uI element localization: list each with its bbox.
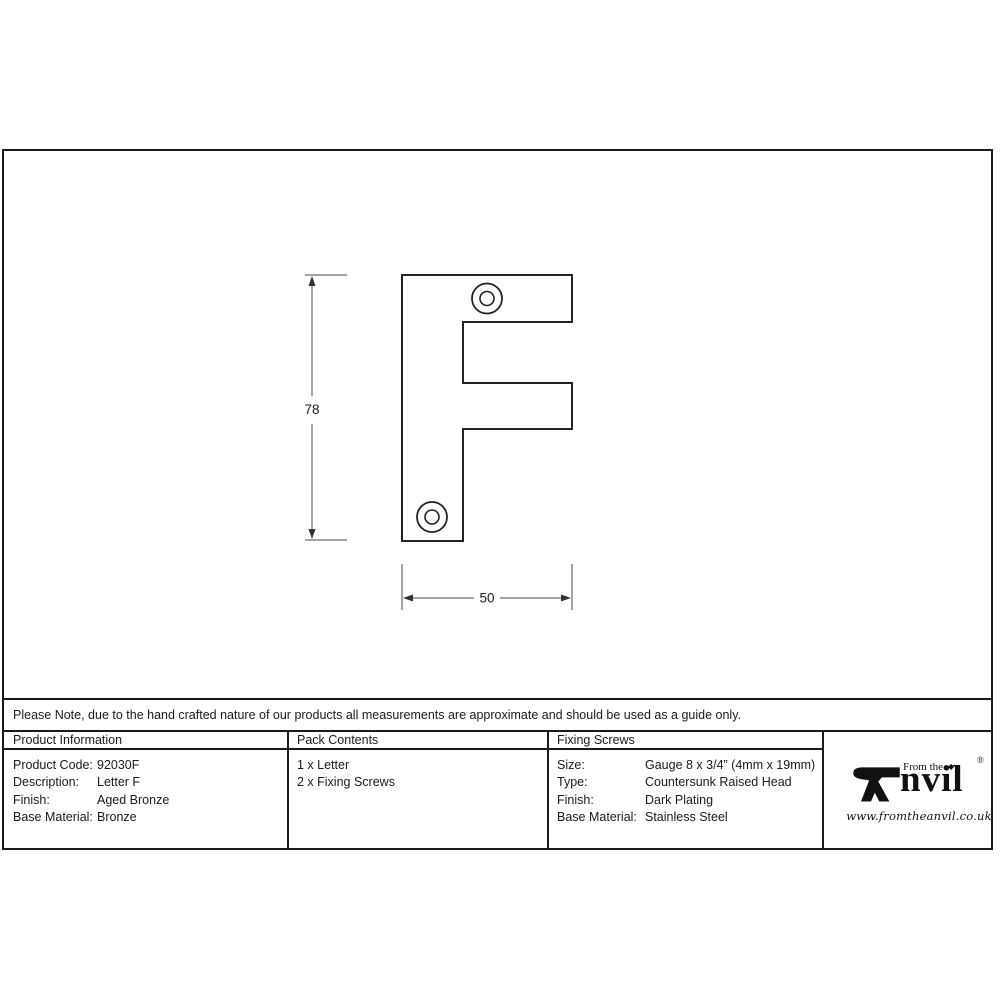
row-label: Finish: [557, 792, 645, 809]
table-row: Base Material: Stainless Steel [557, 809, 815, 826]
width-arrow-left [403, 595, 413, 602]
pack-contents-rows: 1 x Letter 2 x Fixing Screws [297, 757, 537, 792]
notice-bottom-rule [2, 730, 993, 732]
row-value: Bronze [97, 809, 137, 826]
height-arrow-bottom [309, 529, 316, 539]
table-row: Finish: Aged Bronze [13, 792, 278, 809]
registered-mark: ® [977, 755, 984, 765]
row-label: Base Material: [13, 809, 97, 826]
column-divider-2 [547, 730, 549, 850]
product-information-rows: Product Code: 92030F Description: Letter… [13, 757, 278, 826]
logo-url: www.fromtheanvil.co.uk [841, 809, 997, 823]
row-value: Aged Bronze [97, 792, 169, 809]
fixing-screws-rows: Size: Gauge 8 x 3/4” (4mm x 19mm) Type: … [557, 757, 815, 826]
row-value: Dark Plating [645, 792, 713, 809]
row-value: 92030F [97, 757, 139, 774]
height-arrow-top [309, 276, 316, 286]
header-bottom-rule [2, 748, 823, 750]
height-dimension-label: 78 [304, 402, 319, 417]
table-row: Type: Countersunk Raised Head [557, 774, 815, 791]
header-pack-contents: Pack Contents [297, 733, 378, 748]
anvil-icon [851, 762, 901, 806]
table-row: Finish: Dark Plating [557, 792, 815, 809]
width-arrow-right [561, 595, 571, 602]
notice-bar: Please Note, due to the hand crafted nat… [13, 700, 973, 730]
row-label: Product Code: [13, 757, 97, 774]
technical-drawing: 78 50 [270, 255, 615, 620]
list-item: 1 x Letter [297, 757, 537, 774]
diamond-icon: ◆ [948, 762, 954, 771]
row-value: Letter F [97, 774, 140, 791]
row-label: Size: [557, 757, 645, 774]
letter-f-outline [402, 275, 572, 541]
table-row: Product Code: 92030F [13, 757, 278, 774]
column-divider-3 [822, 730, 824, 850]
row-value: Stainless Steel [645, 809, 728, 826]
row-value: Countersunk Raised Head [645, 774, 792, 791]
column-divider-1 [287, 730, 289, 850]
header-product-information: Product Information [13, 733, 122, 748]
row-label: Base Material: [557, 809, 645, 826]
pack-item: 1 x Letter [297, 757, 349, 774]
row-label: Type: [557, 774, 645, 791]
table-row: Base Material: Bronze [13, 809, 278, 826]
header-fixing-screws: Fixing Screws [557, 733, 635, 748]
datasheet-page: 78 50 Please Note, due to the hand craft… [0, 0, 1000, 1000]
brand-tagline: From the◆ [903, 761, 954, 773]
notice-text: Please Note, due to the hand crafted nat… [13, 708, 741, 722]
row-label: Description: [13, 774, 97, 791]
row-label: Finish: [13, 792, 97, 809]
pack-item: 2 x Fixing Screws [297, 774, 395, 791]
row-value: Gauge 8 x 3/4” (4mm x 19mm) [645, 757, 815, 774]
anvil-logo: nvil From the◆ ® www.fromtheanvil.co.uk [845, 752, 991, 826]
table-row: Size: Gauge 8 x 3/4” (4mm x 19mm) [557, 757, 815, 774]
table-row: Description: Letter F [13, 774, 278, 791]
list-item: 2 x Fixing Screws [297, 774, 537, 791]
from-the-text: From the [903, 761, 943, 773]
width-dimension-label: 50 [479, 591, 494, 606]
